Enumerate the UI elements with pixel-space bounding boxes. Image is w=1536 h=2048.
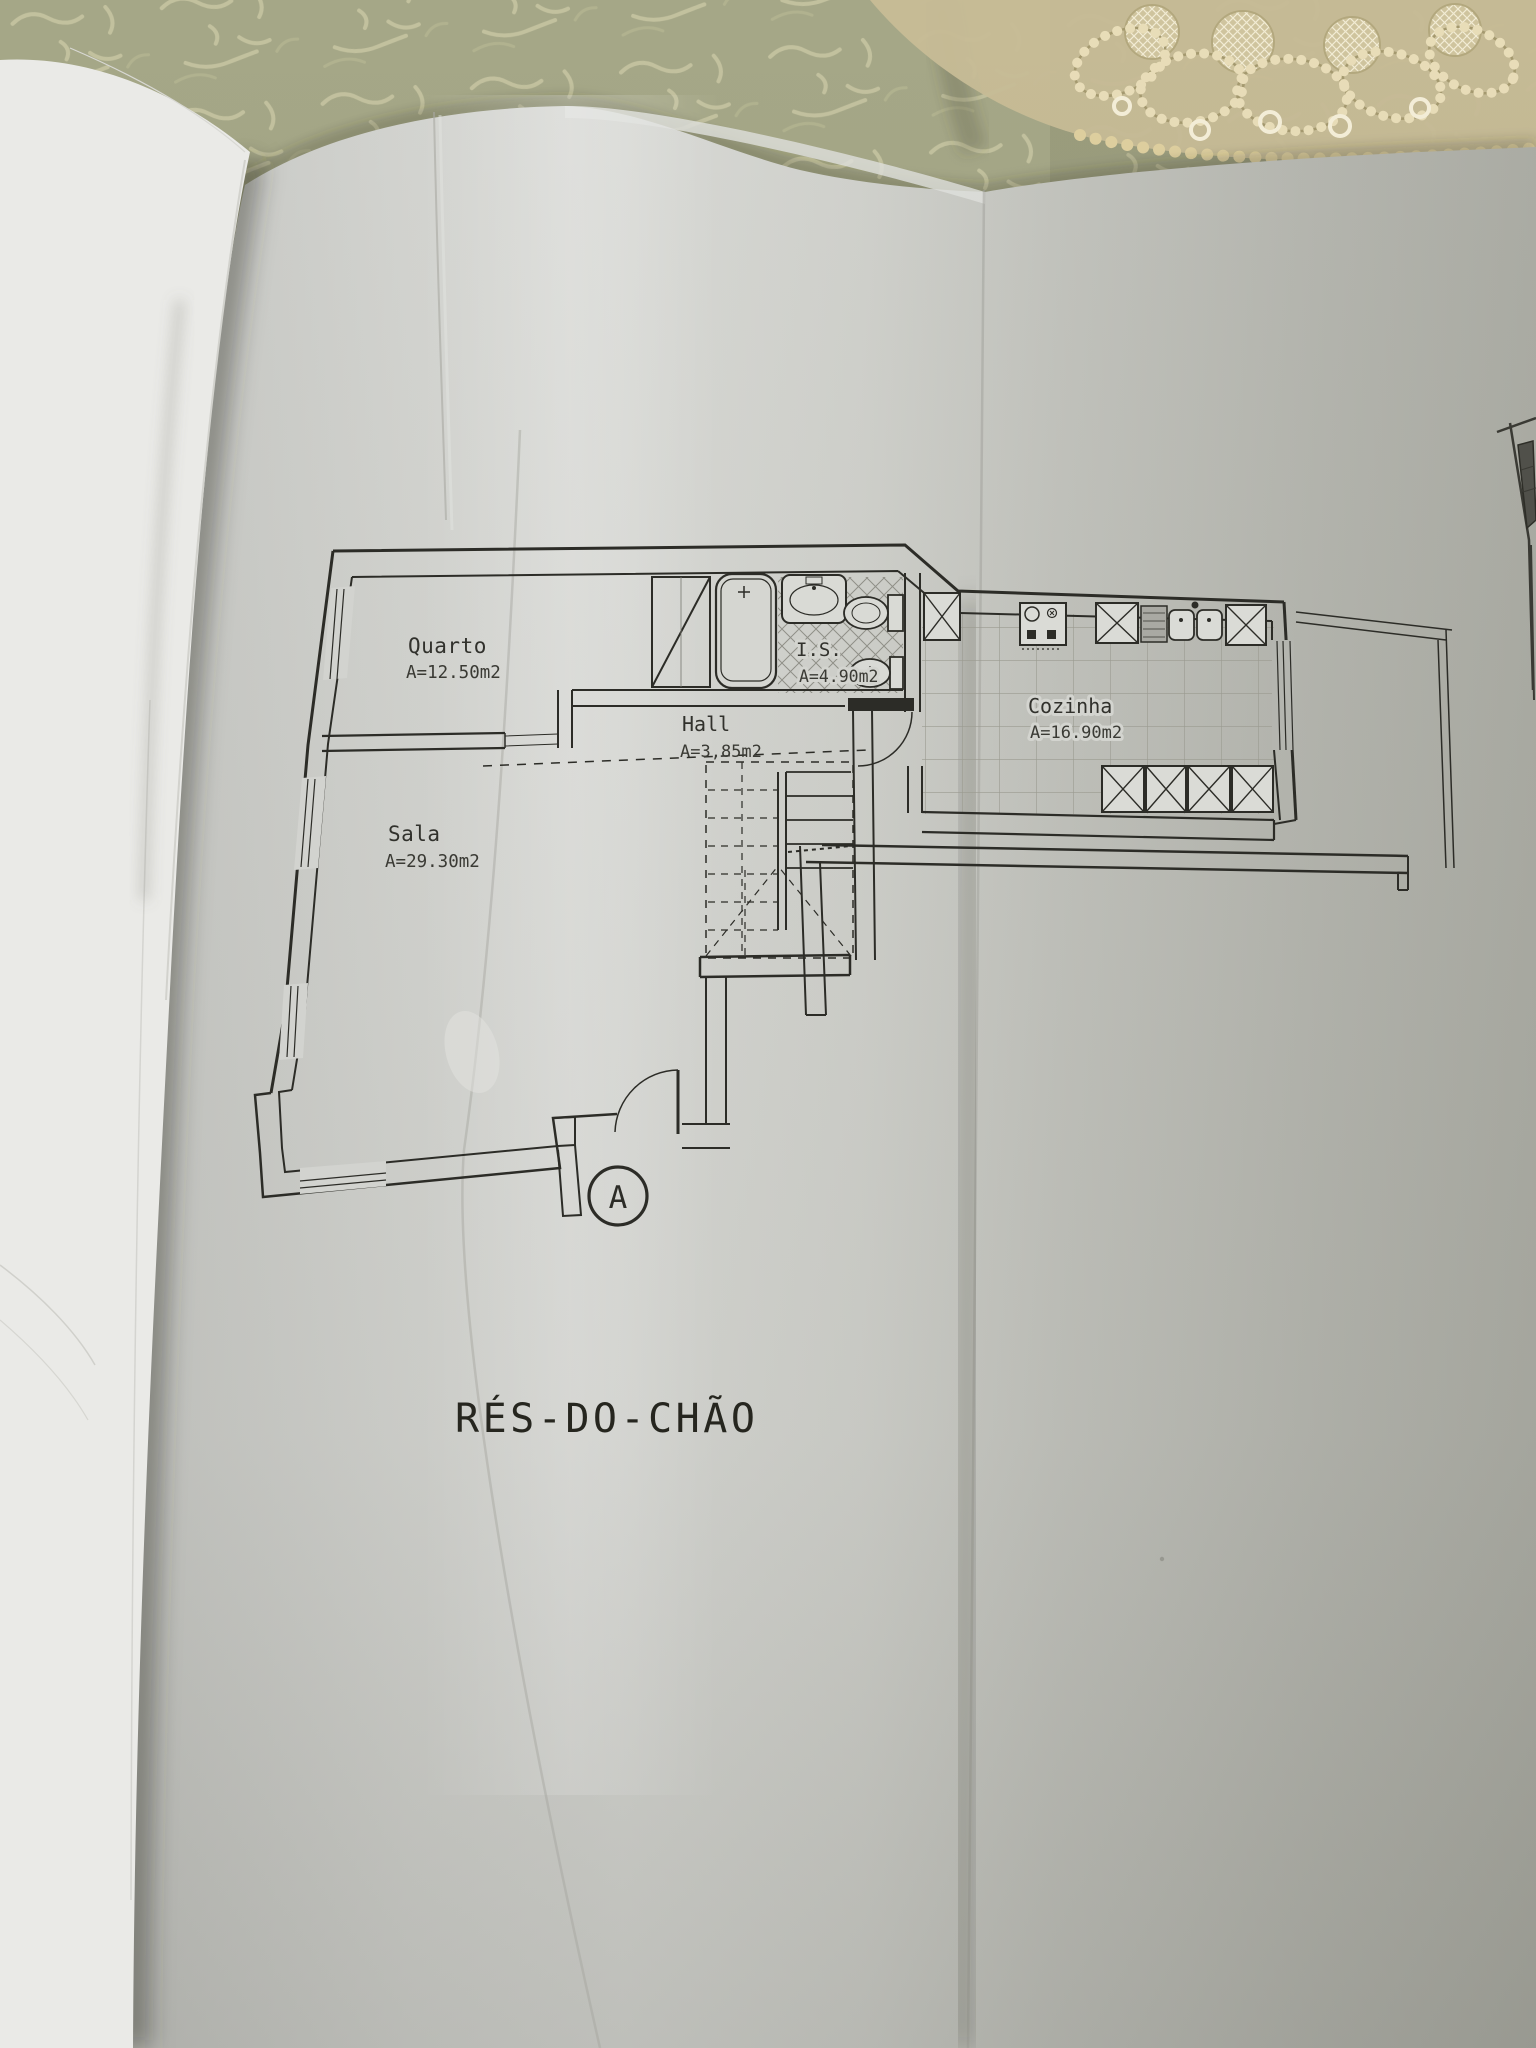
room-area-quarto: A=12.50m2 xyxy=(406,663,501,683)
stove-icon xyxy=(1020,603,1066,649)
room-label-sala: Sala xyxy=(388,822,441,846)
cabinet-x-icon xyxy=(1226,605,1266,645)
room-label-hall: Hall xyxy=(682,712,730,736)
room-area-cozinha: A=16.90m2 xyxy=(1030,723,1122,743)
cabinet-x-icon xyxy=(1102,766,1144,812)
room-label-is: I.S. xyxy=(796,639,842,661)
bathtub-icon xyxy=(716,574,776,688)
room-area-is: A=4.90m2 xyxy=(799,667,878,686)
section-marker-label: A xyxy=(609,1180,628,1216)
room-area-sala: A=29.30m2 xyxy=(385,852,480,872)
toilet-icon xyxy=(844,595,903,631)
plan-title: RÉS-DO-CHÃO xyxy=(455,1394,758,1442)
cabinet-x-icon xyxy=(1188,766,1230,812)
cabinet-x-icon xyxy=(1146,766,1186,812)
washbasin-icon xyxy=(782,575,846,623)
room-area-hall: A=3,85m2 xyxy=(680,742,762,762)
cabinet-x-icon xyxy=(924,593,960,640)
scene-svg: A Quarto A=12.50m2 Sala A=29.30m2 Hall A… xyxy=(0,0,1536,2048)
room-label-quarto: Quarto xyxy=(408,634,487,658)
drainer-icon xyxy=(1141,606,1167,642)
cabinet-x-icon xyxy=(1232,766,1273,812)
cabinet-x-icon xyxy=(1096,603,1138,643)
photo-of-floor-plan-page: A Quarto A=12.50m2 Sala A=29.30m2 Hall A… xyxy=(0,0,1536,2048)
room-label-cozinha: Cozinha xyxy=(1028,694,1112,718)
